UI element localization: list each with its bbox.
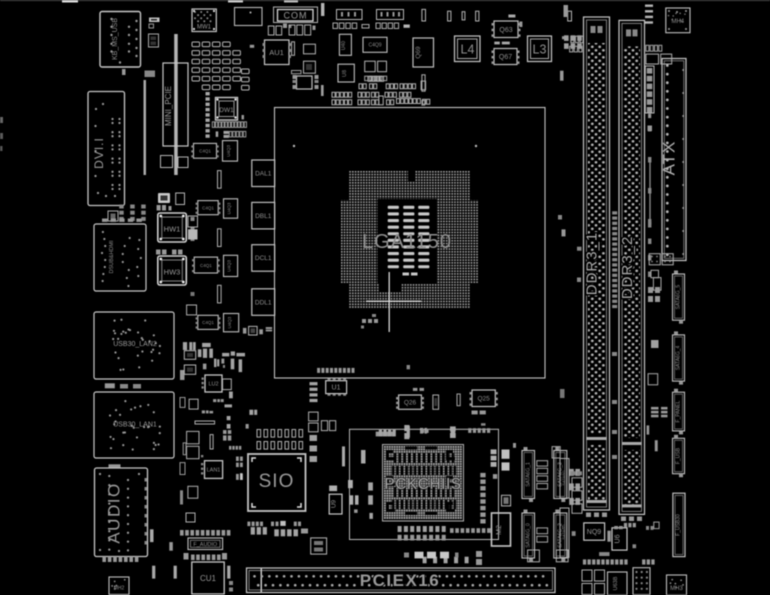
svg-text:LU2: LU2: [208, 382, 218, 388]
svg-text:DAL1: DAL1: [255, 171, 272, 178]
svg-text:AUDIO: AUDIO: [105, 482, 124, 543]
svg-text:U1: U1: [332, 385, 341, 392]
svg-text:MINI_PCIE: MINI_PCIE: [164, 86, 173, 126]
svg-text:SATA6G_4: SATA6G_4: [676, 346, 682, 371]
svg-text:MH4: MH4: [671, 19, 684, 25]
svg-text:U9: U9: [331, 499, 338, 508]
svg-text:C4Q1: C4Q1: [200, 263, 212, 268]
svg-text:MH3: MH3: [670, 586, 683, 592]
svg-text:HW3: HW3: [164, 268, 181, 277]
svg-text:MH2: MH2: [114, 586, 125, 592]
svg-text:DBL1: DBL1: [255, 213, 272, 220]
svg-text:NQ9: NQ9: [587, 529, 602, 536]
svg-text:U6: U6: [615, 534, 622, 543]
svg-text:U4Q3: U4Q3: [226, 144, 231, 156]
svg-text:HW1: HW1: [164, 225, 181, 234]
svg-text:U8: U8: [342, 70, 348, 77]
svg-text:DDL1: DDL1: [255, 299, 272, 306]
svg-text:DVI.I: DVI.I: [92, 137, 106, 169]
svg-text:F_PANEL: F_PANEL: [676, 400, 682, 422]
svg-text:COM: COM: [284, 11, 308, 21]
svg-text:F_AUDIO: F_AUDIO: [193, 542, 218, 548]
svg-text:U4Q3: U4Q3: [227, 260, 232, 272]
svg-text:SATA6G_1: SATA6G_1: [525, 462, 531, 487]
svg-text:Q69: Q69: [415, 46, 422, 59]
svg-text:U4Q3: U4Q3: [227, 202, 232, 214]
svg-text:DDR3_2: DDR3_2: [619, 236, 636, 300]
svg-text:M2: M2: [496, 525, 503, 535]
svg-text:PCIEX16: PCIEX16: [360, 571, 440, 590]
svg-text:USB30_LAN1: USB30_LAN1: [113, 422, 157, 429]
svg-text:U4Q3: U4Q3: [227, 316, 232, 328]
svg-text:CU1: CU1: [200, 574, 217, 583]
svg-text:C4Q9: C4Q9: [368, 43, 381, 49]
svg-text:L3: L3: [533, 43, 547, 57]
svg-text:DW1: DW1: [219, 107, 234, 114]
svg-text:AU1: AU1: [269, 48, 284, 57]
svg-text:SATA6G_0: SATA6G_0: [525, 523, 531, 548]
svg-text:SATA6G: SATA6G: [561, 524, 566, 539]
svg-text:Q25: Q25: [478, 396, 491, 403]
svg-text:U40: U40: [341, 41, 347, 50]
svg-text:Q26: Q26: [404, 400, 417, 407]
svg-text:C4Q1: C4Q1: [202, 205, 214, 210]
svg-text:L4: L4: [461, 43, 475, 57]
svg-text:LGA1150: LGA1150: [362, 231, 452, 253]
svg-text:KB_MS_USB: KB_MS_USB: [112, 18, 119, 60]
svg-text:DSUB&HDMI: DSUB&HDMI: [109, 240, 115, 273]
svg-text:F_USB30: F_USB30: [676, 514, 682, 536]
svg-text:SATA6G_5: SATA6G_5: [676, 285, 682, 310]
svg-text:ATX: ATX: [660, 141, 679, 176]
svg-text:F_USB: F_USB: [676, 447, 682, 464]
svg-text:C4Q1: C4Q1: [199, 149, 211, 154]
svg-text:LAN1: LAN1: [207, 468, 221, 474]
svg-text:Q67: Q67: [499, 54, 512, 61]
svg-text:MW1: MW1: [197, 25, 212, 31]
svg-text:SATA6G: SATA6G: [561, 470, 566, 485]
svg-text:U63B: U63B: [613, 576, 619, 590]
svg-text:C4Q1: C4Q1: [202, 320, 214, 325]
svg-text:DDR3_1: DDR3_1: [584, 232, 601, 296]
svg-text:USB30_LAN2: USB30_LAN2: [113, 341, 157, 348]
svg-text:DCL1: DCL1: [255, 255, 272, 262]
svg-text:Q63: Q63: [499, 27, 512, 34]
svg-text:SIO: SIO: [259, 471, 295, 492]
svg-text:PCKCHIIS: PCKCHIIS: [384, 476, 461, 493]
